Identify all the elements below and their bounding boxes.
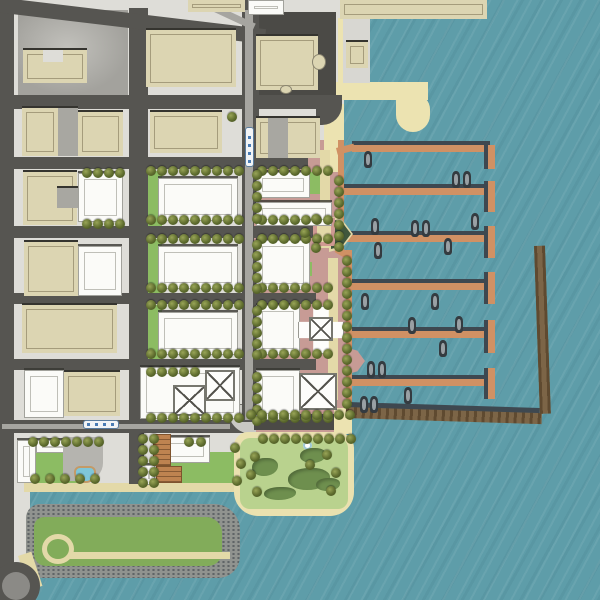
boat bbox=[364, 151, 372, 168]
tree bbox=[252, 317, 262, 327]
tree bbox=[149, 434, 159, 444]
tree bbox=[323, 410, 333, 420]
tree bbox=[290, 283, 300, 293]
boat bbox=[408, 317, 416, 334]
building bbox=[64, 372, 120, 416]
building-wing bbox=[58, 108, 78, 156]
tree bbox=[61, 437, 71, 447]
pier-4-cap bbox=[488, 272, 495, 304]
tree bbox=[323, 166, 333, 176]
tree bbox=[342, 366, 352, 376]
boat bbox=[463, 171, 471, 188]
tree bbox=[179, 300, 189, 310]
tree bbox=[252, 262, 262, 272]
boat bbox=[360, 396, 368, 413]
tree bbox=[223, 300, 233, 310]
tree bbox=[201, 215, 211, 225]
tree bbox=[223, 215, 233, 225]
tree bbox=[252, 487, 262, 497]
pier-4 bbox=[352, 283, 490, 290]
tree bbox=[212, 234, 222, 244]
tree bbox=[212, 166, 222, 176]
pier-1-cap bbox=[488, 145, 495, 169]
tree bbox=[157, 300, 167, 310]
building bbox=[22, 305, 117, 353]
tree bbox=[223, 234, 233, 244]
tree bbox=[300, 228, 310, 238]
tree bbox=[257, 410, 267, 420]
tree bbox=[323, 300, 333, 310]
boat bbox=[374, 242, 382, 259]
tree bbox=[252, 350, 262, 360]
tree bbox=[305, 460, 315, 470]
tree bbox=[82, 219, 92, 229]
pier-5-cap bbox=[488, 320, 495, 353]
tree bbox=[335, 434, 345, 444]
tree bbox=[342, 322, 352, 332]
pier-6 bbox=[352, 379, 490, 386]
tree bbox=[290, 300, 300, 310]
tree bbox=[322, 450, 332, 460]
tree bbox=[334, 242, 344, 252]
boat bbox=[370, 396, 378, 413]
landmark-entry bbox=[280, 85, 292, 94]
tree bbox=[331, 468, 341, 478]
tree bbox=[234, 234, 244, 244]
tower-roof bbox=[173, 385, 206, 416]
new-building bbox=[78, 246, 122, 296]
tram-east-west bbox=[83, 420, 119, 429]
tree bbox=[93, 219, 103, 229]
pergola bbox=[156, 466, 182, 483]
tree bbox=[279, 410, 289, 420]
tree bbox=[342, 333, 352, 343]
tree bbox=[342, 289, 352, 299]
tree bbox=[157, 367, 167, 377]
tree bbox=[179, 413, 189, 423]
tree bbox=[223, 283, 233, 293]
tree bbox=[252, 372, 262, 382]
tree bbox=[252, 383, 262, 393]
peninsula-path bbox=[70, 552, 230, 559]
tree bbox=[190, 349, 200, 359]
tree bbox=[312, 349, 322, 359]
tree bbox=[252, 394, 262, 404]
tree bbox=[323, 283, 333, 293]
tree bbox=[157, 215, 167, 225]
tree bbox=[115, 168, 125, 178]
tree bbox=[93, 168, 103, 178]
tree bbox=[179, 215, 189, 225]
tree bbox=[39, 437, 49, 447]
boat bbox=[452, 171, 460, 188]
tree bbox=[146, 349, 156, 359]
tree bbox=[146, 215, 156, 225]
tree bbox=[157, 166, 167, 176]
tree bbox=[346, 434, 356, 444]
tree bbox=[157, 234, 167, 244]
tree bbox=[342, 256, 352, 266]
tree bbox=[290, 166, 300, 176]
tree bbox=[212, 283, 222, 293]
tree bbox=[190, 215, 200, 225]
tree bbox=[212, 413, 222, 423]
boat bbox=[411, 220, 419, 237]
tree bbox=[290, 234, 300, 244]
tree bbox=[201, 283, 211, 293]
tree bbox=[157, 413, 167, 423]
tree bbox=[94, 437, 104, 447]
site-plan-map bbox=[0, 0, 600, 600]
boat bbox=[471, 213, 479, 230]
tree bbox=[301, 283, 311, 293]
boat bbox=[431, 293, 439, 310]
tree bbox=[149, 478, 159, 488]
tree bbox=[312, 166, 322, 176]
tree bbox=[323, 234, 333, 244]
tree bbox=[146, 283, 156, 293]
pier-5 bbox=[352, 331, 490, 338]
tree bbox=[104, 168, 114, 178]
tree bbox=[168, 367, 178, 377]
tree bbox=[342, 355, 352, 365]
building bbox=[22, 108, 58, 156]
tree bbox=[334, 198, 344, 208]
tree bbox=[90, 474, 100, 484]
tree bbox=[146, 300, 156, 310]
tree bbox=[201, 166, 211, 176]
tree bbox=[342, 399, 352, 409]
tree bbox=[179, 283, 189, 293]
building bbox=[78, 112, 123, 156]
boat bbox=[378, 361, 386, 378]
tree bbox=[30, 474, 40, 484]
tree bbox=[312, 283, 322, 293]
tree bbox=[313, 434, 323, 444]
tree bbox=[290, 215, 300, 225]
tree bbox=[246, 410, 256, 420]
tree bbox=[334, 231, 344, 241]
tree bbox=[179, 166, 189, 176]
tree bbox=[179, 349, 189, 359]
tree bbox=[279, 215, 289, 225]
tree bbox=[234, 215, 244, 225]
tree bbox=[190, 234, 200, 244]
tree bbox=[279, 166, 289, 176]
tree bbox=[138, 456, 148, 466]
tree bbox=[232, 476, 242, 486]
tower-roof bbox=[309, 317, 333, 341]
tree bbox=[252, 181, 262, 191]
tree bbox=[252, 170, 262, 180]
tree bbox=[280, 434, 290, 444]
boat bbox=[367, 361, 375, 378]
tree bbox=[334, 176, 344, 186]
tree bbox=[301, 215, 311, 225]
tree bbox=[190, 300, 200, 310]
tree bbox=[190, 413, 200, 423]
tree bbox=[268, 215, 278, 225]
tree bbox=[268, 410, 278, 420]
boat bbox=[455, 316, 463, 333]
tree bbox=[290, 410, 300, 420]
tree bbox=[268, 300, 278, 310]
building bbox=[248, 0, 284, 15]
tree bbox=[50, 437, 60, 447]
boat bbox=[422, 220, 430, 237]
tree bbox=[252, 306, 262, 316]
tree bbox=[223, 349, 233, 359]
tree bbox=[342, 278, 352, 288]
tree bbox=[234, 413, 244, 423]
tree bbox=[342, 388, 352, 398]
boat bbox=[444, 238, 452, 255]
tree bbox=[334, 187, 344, 197]
boat bbox=[404, 387, 412, 404]
tree bbox=[149, 467, 159, 477]
tree bbox=[75, 474, 85, 484]
tree bbox=[312, 300, 322, 310]
tree bbox=[168, 234, 178, 244]
tree bbox=[268, 234, 278, 244]
tree bbox=[115, 219, 125, 229]
tree bbox=[312, 410, 322, 420]
tree bbox=[168, 300, 178, 310]
tree bbox=[311, 214, 321, 224]
new-building bbox=[24, 370, 64, 418]
tree bbox=[184, 437, 194, 447]
tree bbox=[227, 112, 237, 122]
beach-hook-tip bbox=[396, 94, 430, 132]
roundabout-center bbox=[2, 572, 30, 600]
building-notch bbox=[43, 50, 63, 62]
tree bbox=[146, 367, 156, 377]
tree bbox=[138, 478, 148, 488]
tree bbox=[223, 413, 233, 423]
tree bbox=[234, 300, 244, 310]
tree bbox=[146, 166, 156, 176]
tower-roof bbox=[205, 370, 235, 401]
tree bbox=[201, 234, 211, 244]
tree bbox=[302, 434, 312, 444]
building-wing bbox=[268, 118, 288, 158]
tree bbox=[179, 367, 189, 377]
waterfront-path bbox=[24, 483, 240, 492]
tree bbox=[168, 349, 178, 359]
tree bbox=[157, 283, 167, 293]
tram-track bbox=[245, 10, 253, 420]
tree bbox=[246, 470, 256, 480]
shore-pavilion bbox=[346, 42, 368, 68]
tree bbox=[301, 166, 311, 176]
pier-2 bbox=[344, 188, 490, 195]
boat bbox=[361, 293, 369, 310]
tree bbox=[252, 192, 262, 202]
tree bbox=[190, 367, 200, 377]
tree bbox=[252, 328, 262, 338]
pier-1 bbox=[352, 145, 490, 152]
tree bbox=[168, 215, 178, 225]
path-loop bbox=[42, 534, 74, 564]
tree bbox=[157, 349, 167, 359]
tree bbox=[196, 437, 206, 447]
tree bbox=[190, 283, 200, 293]
tree bbox=[190, 166, 200, 176]
tree bbox=[269, 434, 279, 444]
building bbox=[150, 112, 222, 153]
tree bbox=[301, 349, 311, 359]
tree bbox=[311, 243, 321, 253]
tree bbox=[279, 283, 289, 293]
tree bbox=[60, 474, 70, 484]
tree bbox=[345, 410, 355, 420]
tree bbox=[83, 437, 93, 447]
tree bbox=[342, 267, 352, 277]
tree bbox=[258, 434, 268, 444]
tree bbox=[212, 300, 222, 310]
tree bbox=[252, 203, 262, 213]
tree bbox=[291, 434, 301, 444]
tree bbox=[342, 344, 352, 354]
tree bbox=[201, 413, 211, 423]
tree bbox=[138, 445, 148, 455]
tree bbox=[342, 377, 352, 387]
tree bbox=[250, 452, 260, 462]
boat bbox=[371, 218, 379, 235]
building bbox=[256, 118, 320, 158]
tree bbox=[201, 300, 211, 310]
tree bbox=[334, 220, 344, 230]
tree bbox=[324, 434, 334, 444]
tree bbox=[234, 166, 244, 176]
tree bbox=[342, 311, 352, 321]
tree bbox=[268, 283, 278, 293]
pier-2-cap bbox=[488, 181, 495, 212]
tree bbox=[279, 300, 289, 310]
building bbox=[340, 0, 487, 19]
tree bbox=[252, 339, 262, 349]
tree bbox=[179, 234, 189, 244]
tree bbox=[334, 209, 344, 219]
tree bbox=[279, 234, 289, 244]
pier-6-cap bbox=[488, 368, 495, 399]
tree bbox=[138, 467, 148, 477]
landmark-apse bbox=[312, 54, 326, 70]
tree bbox=[301, 410, 311, 420]
tree bbox=[168, 413, 178, 423]
tree bbox=[201, 349, 211, 359]
tree bbox=[252, 240, 262, 250]
tree bbox=[234, 349, 244, 359]
tree bbox=[323, 349, 333, 359]
tree bbox=[234, 283, 244, 293]
tree bbox=[149, 456, 159, 466]
tree bbox=[252, 251, 262, 261]
tree bbox=[212, 215, 222, 225]
new-building bbox=[256, 305, 300, 355]
tree bbox=[104, 219, 114, 229]
tree bbox=[138, 434, 148, 444]
street-e1 bbox=[0, 95, 340, 109]
building bbox=[24, 242, 78, 296]
tree bbox=[252, 273, 262, 283]
tree bbox=[268, 349, 278, 359]
building bbox=[188, 0, 245, 12]
tree bbox=[252, 284, 262, 294]
boat bbox=[439, 340, 447, 357]
tree bbox=[252, 214, 262, 224]
tree bbox=[334, 410, 344, 420]
tree bbox=[268, 166, 278, 176]
tree bbox=[146, 413, 156, 423]
tree bbox=[28, 437, 38, 447]
tree bbox=[236, 459, 246, 469]
tram-north-south bbox=[245, 127, 254, 167]
tree bbox=[45, 474, 55, 484]
tree bbox=[168, 166, 178, 176]
tree bbox=[72, 437, 82, 447]
tree bbox=[223, 166, 233, 176]
new-building bbox=[78, 173, 123, 222]
tree bbox=[326, 486, 336, 496]
tree bbox=[146, 234, 156, 244]
tree bbox=[82, 168, 92, 178]
pier-3-cap bbox=[488, 226, 495, 258]
landmark-hall bbox=[256, 36, 318, 90]
tree bbox=[279, 349, 289, 359]
tree bbox=[342, 300, 352, 310]
tower-roof bbox=[299, 373, 337, 410]
tree bbox=[323, 215, 333, 225]
street-n1 bbox=[0, 0, 14, 578]
tree bbox=[168, 283, 178, 293]
building bbox=[146, 30, 236, 87]
tree bbox=[290, 349, 300, 359]
tree bbox=[149, 445, 159, 455]
tree bbox=[301, 300, 311, 310]
tree bbox=[212, 349, 222, 359]
tree bbox=[230, 443, 240, 453]
